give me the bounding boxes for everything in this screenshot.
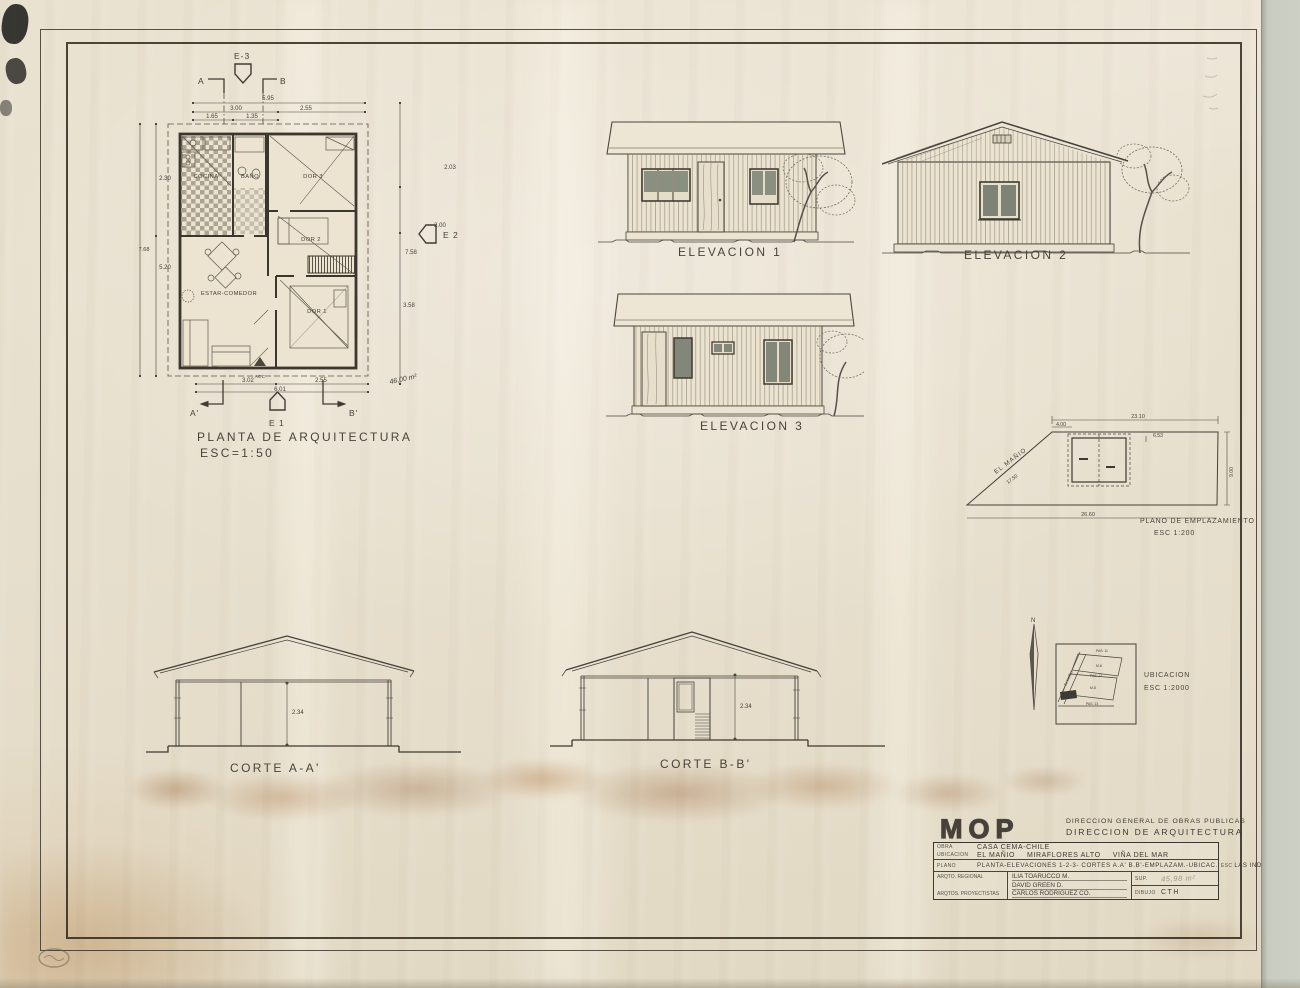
map-label: M-8: [1090, 686, 1096, 690]
elevation-3-drawing: [606, 286, 864, 430]
dim-label: 6.01: [274, 387, 286, 393]
marker-a-prime: A': [190, 408, 199, 418]
dim-label: 1.35: [246, 114, 258, 120]
title-block-table: OBRA CASA CEMA-CHILE UBICACION EL MAÑIO …: [933, 842, 1219, 900]
dim-label: 5.95: [262, 96, 274, 102]
dim-label: 3.58: [403, 303, 415, 309]
agency-line-2: DIRECCION DE ARQUITECTURA: [1066, 827, 1246, 837]
roles-cell: ARQTO. REGIONAL ARQTOS. PROYECTISTAS: [934, 872, 1008, 899]
dim-label: 7.58: [405, 250, 417, 256]
roof-line: [566, 632, 817, 671]
marker-b-prime: B': [349, 408, 358, 418]
dim-label: 9.00: [1229, 467, 1235, 477]
scanner-edge-strip: [1261, 0, 1300, 988]
interior-door: [674, 678, 710, 740]
elevation-2-label: ELEVACION 2: [964, 248, 1068, 262]
section-a-drawing: 2.34: [146, 620, 461, 765]
title-block-row-ubicacion: UBICACION EL MAÑIO MIRAFLORES ALTO VIÑA …: [934, 851, 1218, 860]
corner-stamp-mark: [34, 944, 78, 974]
section-height-label: 2.34: [740, 704, 752, 710]
bottom-edge-shadow: [0, 978, 1300, 988]
section-a-label: CORTE A-A': [230, 761, 321, 775]
ceiling-line: [176, 680, 391, 682]
dim-label: 3.00: [230, 106, 242, 112]
room-label-estar: ESTAR-COMEDOR: [201, 291, 257, 297]
location-map-drawing: N PAS. 11 M-6 PAS. 12 M-8 PAS. 13 EL MAÑ…: [1014, 610, 1258, 750]
roof: [607, 122, 845, 154]
pencil-area-note: 46,00 m²: [389, 373, 418, 386]
marker-e2: E 2: [443, 230, 459, 240]
gable-vent: [993, 135, 1011, 143]
obra-label: OBRA: [934, 844, 977, 850]
signature-name: DAVID GREEN D.: [1012, 882, 1127, 890]
sup-value: 45,98 m²: [1161, 873, 1196, 883]
dim-label: 6.53: [1153, 433, 1163, 439]
signature-name: CARLOS RODRIGUEZ CO.: [1012, 890, 1127, 898]
site-dimension-labels: 23.10 4.00 6.53 9.00 26.60: [1056, 414, 1235, 518]
map-label: PAS. 12: [1090, 674, 1102, 678]
location-map-scale: ESC 1:2000: [1144, 685, 1190, 692]
title-block-row-obra: OBRA CASA CEMA-CHILE: [934, 843, 1218, 851]
floor-plan-drawing: 5.95 3.00 2.55 1.65 1.35 2.30 5.20 7.68 …: [128, 46, 480, 448]
bath-tile-floor: [234, 188, 265, 234]
floor-plan-scale: ESC=1:50: [200, 446, 274, 460]
plinth: [626, 232, 818, 240]
dim-label: 4.00: [1056, 422, 1066, 428]
sup-dibujo-cell: SUP. 45,98 m² DIBUJO CTH: [1132, 872, 1218, 899]
marker-e3: E-3: [234, 51, 250, 61]
plinth: [632, 406, 824, 414]
site-plan-scale: ESC 1:200: [1154, 530, 1195, 537]
ubicacion-value-street: EL MAÑIO: [977, 852, 1015, 859]
corner-mark: [0, 100, 12, 116]
door: [642, 332, 666, 406]
room-label-acc: ACC: [255, 374, 266, 379]
dibujo-label: DIBUJO: [1132, 890, 1161, 896]
title-block-row-signatures: ARQTO. REGIONAL ARQTOS. PROYECTISTAS ILI…: [934, 872, 1218, 899]
names-cell: ILIA TOARUCCO M. DAVID GREEN D. CARLOS R…: [1008, 872, 1132, 899]
dim-label: 2.03: [444, 165, 456, 171]
scanned-architectural-sheet: 5.95 3.00 2.55 1.65 1.35 2.30 5.20 7.68 …: [0, 0, 1300, 988]
ubicacion-value-sector: MIRAFLORES ALTO: [1027, 852, 1101, 859]
elevation-1-label: ELEVACION 1: [678, 245, 782, 259]
mop-logo-text: MOP: [940, 814, 1020, 843]
dim-label: 26.60: [1081, 512, 1095, 518]
dim-label: 2.30: [159, 176, 171, 182]
map-label: PAS. 11: [1096, 649, 1108, 653]
site-house: [1068, 434, 1130, 486]
dim-label: 5.20: [159, 265, 171, 271]
street-dim: 17.50: [1006, 473, 1020, 485]
elevation-1-drawing: [598, 112, 856, 254]
marker-a: A: [198, 76, 205, 86]
section-b-label: CORTE B-B': [660, 757, 751, 771]
plano-value: PLANTA-ELEVACIONES 1-2-3- CORTES A.A' B.…: [977, 862, 1218, 869]
elevation-3-label: ELEVACION 3: [700, 419, 804, 433]
marker-e1: E 1: [269, 418, 285, 428]
dim-label: 23.10: [1131, 414, 1145, 420]
role-1: ARQTO. REGIONAL: [937, 874, 1007, 880]
site-plan-drawing: 23.10 4.00 6.53 9.00 26.60 EL MAÑIO 17.5…: [948, 406, 1240, 546]
floor-line: [146, 746, 461, 752]
dibujo-row: DIBUJO CTH: [1132, 886, 1218, 899]
map-street-label: EL MAÑIO: [1062, 669, 1074, 686]
roof-line: [154, 636, 414, 672]
room-label-dor1: DOR 1: [307, 309, 327, 315]
dibujo-value: CTH: [1161, 889, 1180, 896]
room-label-dor3: DOR 3: [303, 174, 323, 180]
dim-label: 7.68: [139, 247, 150, 253]
room-label-bano: BAÑO: [241, 173, 259, 180]
dim-label: 3.02: [242, 378, 254, 384]
roof: [614, 294, 854, 326]
signature-name: ILIA TOARUCCO M.: [1012, 873, 1127, 881]
marker-b: B: [280, 76, 287, 86]
map-label: M-6: [1096, 664, 1102, 668]
plano-label: PLANO: [934, 863, 977, 869]
corner-mark: [4, 56, 29, 86]
role-2: ARQTOS. PROYECTISTAS: [937, 891, 1007, 897]
dim-label: 2.55: [300, 106, 312, 112]
sup-row: SUP. 45,98 m²: [1132, 872, 1218, 886]
mop-logo: MOP: [938, 813, 1048, 843]
agency-line-1: DIRECCION GENERAL DE OBRAS PUBLICAS: [1066, 818, 1246, 825]
tree: [817, 331, 864, 416]
site-plan-title: PLANO DE EMPLAZAMIENTO: [1140, 518, 1255, 525]
esc-label: ESC: [1218, 860, 1234, 871]
location-map-title: UBICACION: [1144, 672, 1190, 679]
sup-label: SUP.: [1132, 876, 1161, 882]
agency-header: DIRECCION GENERAL DE OBRAS PUBLICAS DIRE…: [1066, 818, 1246, 837]
north-arrow-icon: [1030, 624, 1038, 710]
dim-label: 2.55: [315, 378, 327, 384]
street-name: EL MAÑIO: [993, 447, 1028, 476]
dim-label: 1.65: [206, 114, 218, 120]
section-height-label: 2.34: [292, 710, 304, 716]
kitchen-tile-floor: [181, 136, 231, 235]
map-label: PAS. 13: [1086, 702, 1098, 706]
north-label: N: [1031, 618, 1035, 624]
room-label-dor2: DOR 2: [301, 237, 321, 243]
corner-mark: [0, 2, 31, 45]
floor-line: [550, 740, 885, 746]
section-b-drawing: 2.34: [550, 618, 885, 768]
ubicacion-label: UBICACION: [934, 852, 977, 858]
elevation-2-drawing: [882, 106, 1190, 258]
floor-plan-title: PLANTA DE ARQUITECTURA: [197, 430, 412, 444]
room-label-cocina: COCINA: [194, 174, 219, 180]
title-block-row-plano: PLANO PLANTA-ELEVACIONES 1-2-3- CORTES A…: [934, 860, 1218, 872]
obra-value: CASA CEMA-CHILE: [977, 844, 1050, 851]
section-walls: [176, 680, 391, 746]
ubicacion-value-city: VIÑA DEL MAR: [1113, 852, 1169, 859]
pencil-scribbles: [1195, 50, 1235, 120]
section-walls: [581, 676, 798, 740]
window-1: [674, 338, 692, 378]
